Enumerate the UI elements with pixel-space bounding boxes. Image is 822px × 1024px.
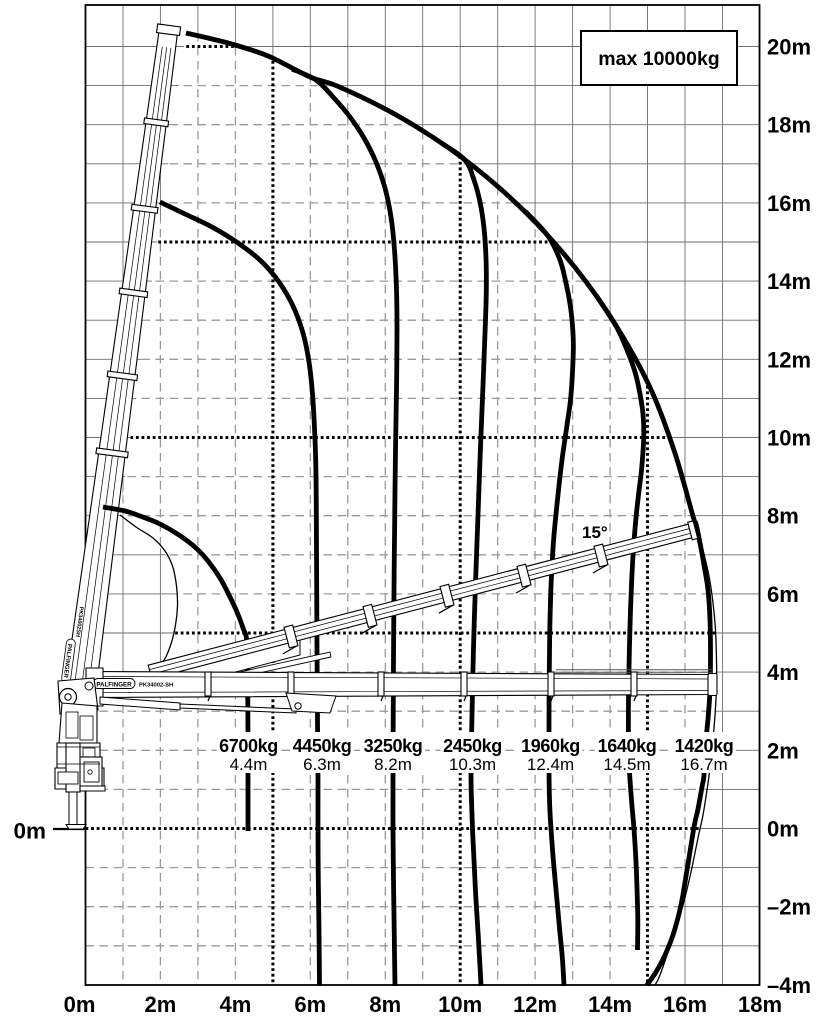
- svg-text:10m: 10m: [767, 426, 811, 451]
- svg-text:18m: 18m: [738, 992, 782, 1017]
- svg-text:8m: 8m: [767, 504, 799, 529]
- svg-text:14m: 14m: [767, 269, 811, 294]
- svg-text:16m: 16m: [663, 992, 707, 1017]
- svg-text:8.2m: 8.2m: [374, 755, 412, 774]
- svg-text:–2m: –2m: [767, 895, 811, 920]
- svg-text:12.4m: 12.4m: [527, 755, 574, 774]
- svg-text:8m: 8m: [369, 992, 401, 1017]
- svg-text:6m: 6m: [294, 992, 326, 1017]
- svg-text:20m: 20m: [767, 35, 811, 60]
- svg-text:max 10000kg: max 10000kg: [598, 48, 719, 70]
- svg-text:15°: 15°: [582, 523, 608, 542]
- svg-text:2m: 2m: [145, 992, 177, 1017]
- svg-text:10.3m: 10.3m: [449, 755, 496, 774]
- svg-text:4m: 4m: [767, 660, 799, 685]
- svg-text:PK34002-SH: PK34002-SH: [139, 682, 173, 688]
- svg-text:6700kg: 6700kg: [219, 736, 278, 756]
- svg-text:12m: 12m: [513, 992, 557, 1017]
- svg-text:2m: 2m: [767, 738, 799, 763]
- svg-text:4m: 4m: [220, 992, 252, 1017]
- svg-text:16m: 16m: [767, 191, 811, 216]
- svg-text:3250kg: 3250kg: [364, 736, 423, 756]
- svg-text:4.4m: 4.4m: [230, 755, 268, 774]
- svg-text:4450kg: 4450kg: [293, 736, 352, 756]
- svg-text:1960kg: 1960kg: [521, 736, 580, 756]
- svg-text:18m: 18m: [767, 113, 811, 138]
- svg-text:14m: 14m: [588, 992, 632, 1017]
- svg-text:10m: 10m: [438, 992, 482, 1017]
- svg-text:6.3m: 6.3m: [303, 755, 341, 774]
- svg-text:12m: 12m: [767, 347, 811, 372]
- svg-text:PALFINGER: PALFINGER: [96, 681, 132, 688]
- svg-text:0m: 0m: [14, 819, 47, 844]
- svg-text:1640kg: 1640kg: [598, 736, 657, 756]
- svg-text:0m: 0m: [767, 817, 799, 842]
- svg-text:0m: 0m: [64, 992, 96, 1017]
- svg-text:2450kg: 2450kg: [443, 736, 502, 756]
- svg-text:14.5m: 14.5m: [603, 755, 650, 774]
- svg-text:16.7m: 16.7m: [680, 755, 727, 774]
- svg-text:6m: 6m: [767, 582, 799, 607]
- svg-text:1420kg: 1420kg: [675, 736, 734, 756]
